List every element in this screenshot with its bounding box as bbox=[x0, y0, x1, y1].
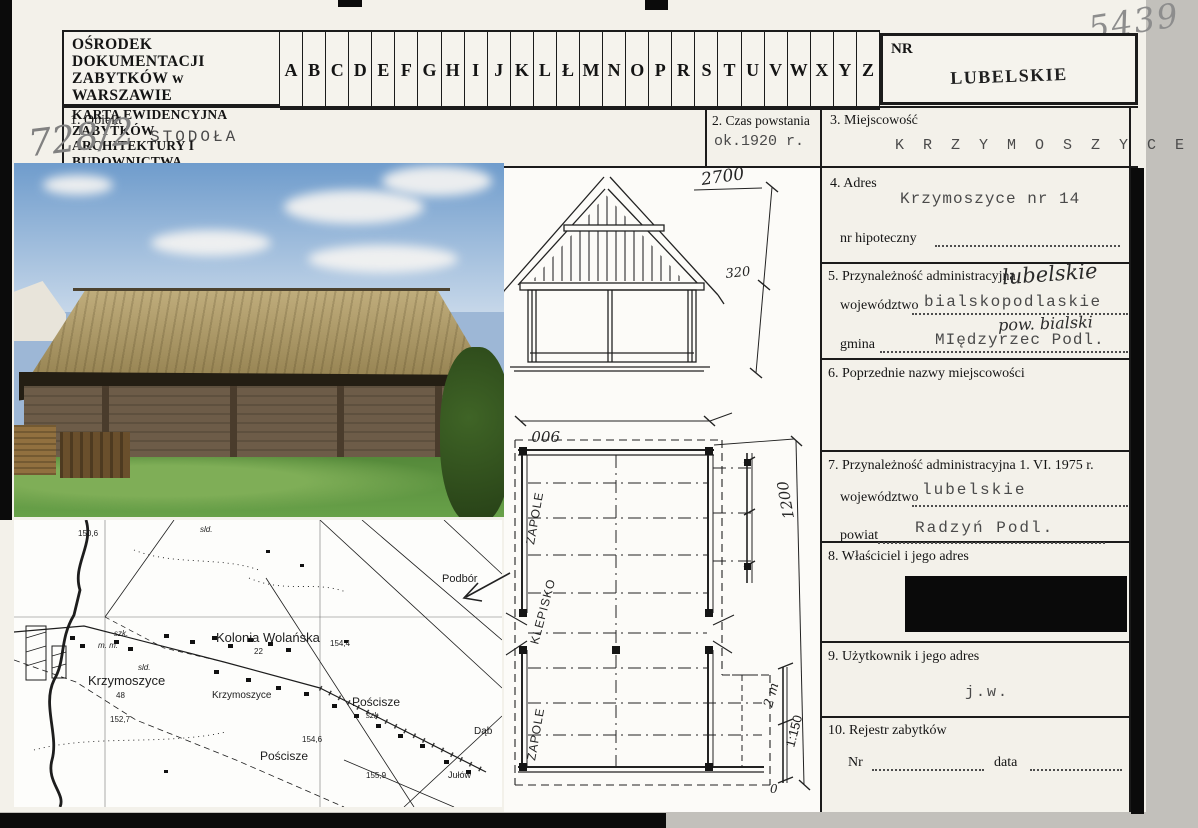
field3-value: K R Z Y M O S Z Y C E bbox=[895, 137, 1189, 154]
field8-label: 8. Właściciel i jego adres bbox=[828, 549, 969, 565]
nr-label: NR bbox=[891, 41, 913, 58]
alphabet-letter-K: K bbox=[511, 32, 534, 108]
topographic-map: 150,6sld.szk.m. m.Krzymoszyce48sld.Kolon… bbox=[14, 520, 502, 807]
map-label: 48 bbox=[116, 691, 125, 700]
section-dim-top: 2700 bbox=[699, 168, 746, 190]
scan-bar-bottom bbox=[0, 813, 666, 828]
photo-wall-post bbox=[230, 386, 237, 464]
rule-f6-f7 bbox=[820, 450, 1131, 452]
rule-column-divider bbox=[820, 108, 822, 812]
field5-wojewodztwo-value: bialskopodlaskie bbox=[924, 293, 1102, 311]
field7-wojewodztwo-label: województwo bbox=[840, 490, 919, 506]
map-label: 155,9 bbox=[366, 771, 387, 780]
rule-header-bottom bbox=[62, 106, 1138, 108]
field4-dotted-line bbox=[935, 244, 1120, 247]
scan-mark-top-1 bbox=[338, 0, 362, 7]
alphabet-letter-V: V bbox=[765, 32, 788, 108]
alphabet-letter-U: U bbox=[742, 32, 765, 108]
map-label: 22 bbox=[254, 647, 263, 656]
plan-scale-ratio: 1:150 bbox=[782, 713, 805, 748]
org-name-line2: ZABYTKÓW w WARSZAWIE bbox=[72, 70, 273, 104]
field7-powiat-value: Radzyń Podl. bbox=[915, 519, 1054, 537]
architectural-drawing: 2700 320 bbox=[504, 168, 820, 812]
alphabet-letter-Y: Y bbox=[834, 32, 857, 108]
scan-edge-right bbox=[1146, 0, 1198, 828]
location-arrow bbox=[452, 565, 514, 615]
map-label: sld. bbox=[200, 525, 212, 534]
heritage-record-card: 5439 728/2 OŚRODEK DOKUMENTACJI ZABYTKÓW… bbox=[0, 0, 1198, 828]
field9-label: 9. Użytkownik i jego adres bbox=[828, 649, 979, 665]
alphabet-letter-C: C bbox=[326, 32, 349, 108]
field4-label: 4. Adres bbox=[830, 176, 877, 192]
scan-mark-top-2 bbox=[645, 0, 668, 10]
rule-f5-f6 bbox=[820, 358, 1131, 360]
field6-label: 6. Poprzednie nazwy miejscowości bbox=[828, 366, 1025, 382]
map-label: 154,6 bbox=[302, 735, 323, 744]
alphabet-letter-M: M bbox=[580, 32, 603, 108]
field5-dotted-line-2 bbox=[880, 350, 1128, 353]
alphabet-letter-G: G bbox=[418, 32, 441, 108]
field10-data-label: data bbox=[994, 755, 1017, 771]
map-label: sld. bbox=[138, 663, 150, 672]
photo-woodpile bbox=[14, 425, 56, 475]
alphabet-letter-N: N bbox=[603, 32, 626, 108]
field9-value: j.w. bbox=[965, 684, 1009, 701]
field5-wojewodztwo-label: województwo bbox=[840, 298, 919, 314]
map-label: Jułów bbox=[448, 770, 472, 780]
field5-label: 5. Przynależność administracyjna bbox=[828, 269, 1016, 285]
map-panel: 150,6sld.szk.m. m.Krzymoszyce48sld.Kolon… bbox=[14, 520, 502, 807]
field2-label: 2. Czas powstania bbox=[712, 113, 810, 129]
alphabet-letter-J: J bbox=[488, 32, 511, 108]
rule-column-right bbox=[1129, 108, 1131, 812]
field1-value: STODOŁA bbox=[150, 128, 238, 146]
alphabet-letter-W: W bbox=[788, 32, 811, 108]
field5-hand-note: lubelskie bbox=[1001, 259, 1098, 290]
map-label: 150,6 bbox=[78, 529, 99, 538]
org-name-line1: OŚRODEK DOKUMENTACJI bbox=[72, 36, 273, 70]
plan-scale-zero: 0 bbox=[770, 782, 778, 796]
alphabet-letter-I: I bbox=[465, 32, 488, 108]
map-label: szk. bbox=[114, 629, 128, 638]
alphabet-letter-P: P bbox=[649, 32, 672, 108]
plan-room-zapole-bottom: ZAPOLE bbox=[524, 707, 547, 762]
alphabet-letter-X: X bbox=[811, 32, 834, 108]
barn-photo bbox=[14, 163, 504, 517]
alphabet-letter-A: A bbox=[280, 32, 303, 108]
photo-bush bbox=[440, 347, 504, 517]
field5-gmina-value: MIędzyrzec Podl. bbox=[935, 331, 1105, 349]
field2-value: ok.1920 r. bbox=[714, 133, 804, 150]
plan-dim-width: 900 bbox=[531, 427, 560, 445]
scan-shadow-right bbox=[1131, 168, 1144, 814]
field7-powiat-label: powiat bbox=[840, 528, 878, 544]
rule-f1-f2-divider bbox=[705, 108, 707, 168]
map-label: 152,7 bbox=[110, 715, 131, 724]
section-dim-eave: 320 bbox=[725, 264, 751, 282]
photo-harrow bbox=[60, 432, 130, 478]
photo-wall-post bbox=[337, 386, 344, 464]
map-label: Krzymoszyce bbox=[88, 673, 165, 688]
map-label: Pościsze bbox=[352, 695, 400, 709]
field7-label: 7. Przynależność administracyjna 1. VI. … bbox=[828, 458, 1094, 474]
drawing-panel: 2700 320 bbox=[504, 168, 820, 812]
map-label: 154,4 bbox=[330, 639, 351, 648]
header-institution-box: OŚRODEK DOKUMENTACJI ZABYTKÓW w WARSZAWI… bbox=[62, 30, 280, 106]
alphabet-letter-B: B bbox=[303, 32, 326, 108]
field10-dotted-line-1 bbox=[872, 768, 984, 771]
map-label: Dąb bbox=[474, 726, 493, 737]
field7-dotted-line-2 bbox=[878, 541, 1105, 544]
alphabet-letter-H: H bbox=[442, 32, 465, 108]
alphabet-letter-S: S bbox=[695, 32, 718, 108]
alphabet-letter-Ł: Ł bbox=[557, 32, 580, 108]
field4-value: Krzymoszyce nr 14 bbox=[900, 190, 1080, 208]
alphabet-letter-E: E bbox=[372, 32, 395, 108]
alphabet-letter-Z: Z bbox=[857, 32, 880, 108]
photo-roof-ridge bbox=[73, 288, 450, 291]
alphabet-letter-F: F bbox=[395, 32, 418, 108]
field10-dotted-line-2 bbox=[1030, 768, 1122, 771]
alphabet-letter-D: D bbox=[349, 32, 372, 108]
plan-dim-length: 1200 bbox=[774, 479, 798, 520]
alphabet-letter-T: T bbox=[718, 32, 741, 108]
rule-f9-f10 bbox=[820, 716, 1131, 718]
map-label: m. m. bbox=[98, 641, 118, 650]
alphabet-letter-L: L bbox=[534, 32, 557, 108]
rule-f8-f9 bbox=[820, 641, 1131, 643]
map-label: Kolonia Wolańska bbox=[216, 630, 321, 645]
alphabet-letter-O: O bbox=[626, 32, 649, 108]
voivodeship-stamp: LUBELSKIE bbox=[883, 62, 1136, 92]
field3-label: 3. Miejscowość bbox=[830, 113, 918, 129]
alphabet-index-strip: ABCDEFGHIJKLŁMNOPRSTUVWXYZ bbox=[280, 30, 880, 110]
field7-dotted-line-1 bbox=[912, 504, 1128, 507]
map-label: Pościsze bbox=[260, 749, 308, 763]
plan-room-klepisko: KLEPISKO bbox=[527, 577, 558, 646]
field7-wojewodztwo-value: lubelskie bbox=[922, 481, 1026, 499]
photo-thatched-roof bbox=[24, 290, 494, 386]
field10-label: 10. Rejestr zabytków bbox=[828, 723, 947, 739]
redaction-box bbox=[905, 576, 1127, 632]
plan-scale-length: 2 m bbox=[761, 681, 782, 710]
field10-nr-label: Nr bbox=[848, 755, 863, 771]
nr-box: NR LUBELSKIE bbox=[880, 33, 1138, 105]
map-label: Krzymoszyce bbox=[212, 690, 272, 701]
field4-hipoteczny-label: nr hipoteczny bbox=[840, 231, 917, 247]
alphabet-letter-R: R bbox=[672, 32, 695, 108]
field5-gmina-label: gmina bbox=[840, 337, 875, 353]
scan-edge-left bbox=[0, 0, 12, 520]
map-label: szk. bbox=[366, 711, 380, 720]
